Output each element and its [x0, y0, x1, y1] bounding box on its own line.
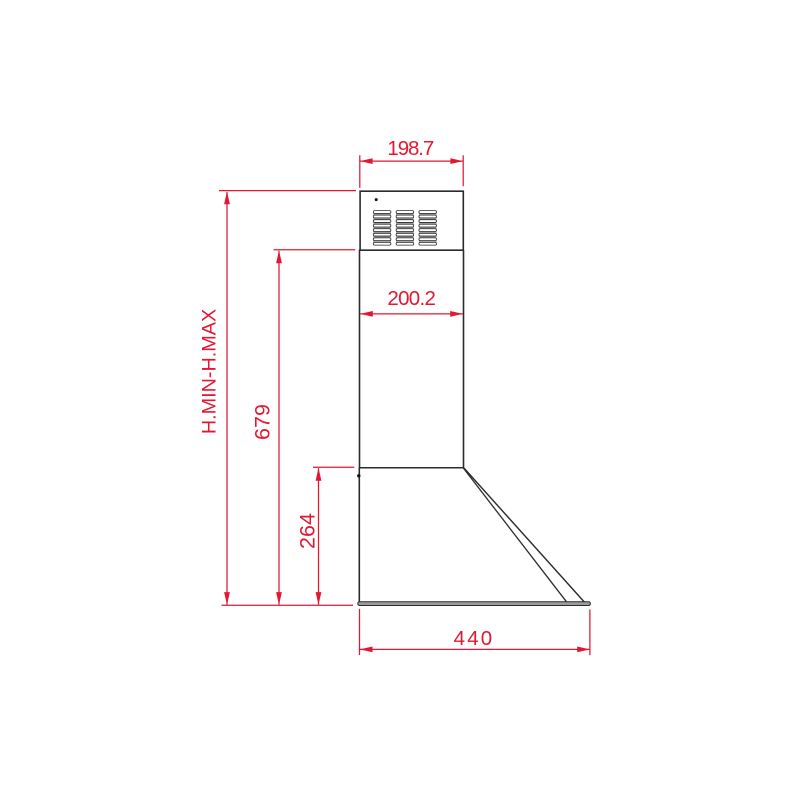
svg-text:198.7: 198.7 [387, 137, 433, 160]
svg-text:679: 679 [251, 404, 275, 440]
svg-text:200.2: 200.2 [387, 287, 435, 310]
svg-text:H.MIN-H.MAX: H.MIN-H.MAX [199, 309, 221, 434]
svg-text:440: 440 [454, 627, 495, 650]
svg-text:264: 264 [296, 513, 320, 549]
